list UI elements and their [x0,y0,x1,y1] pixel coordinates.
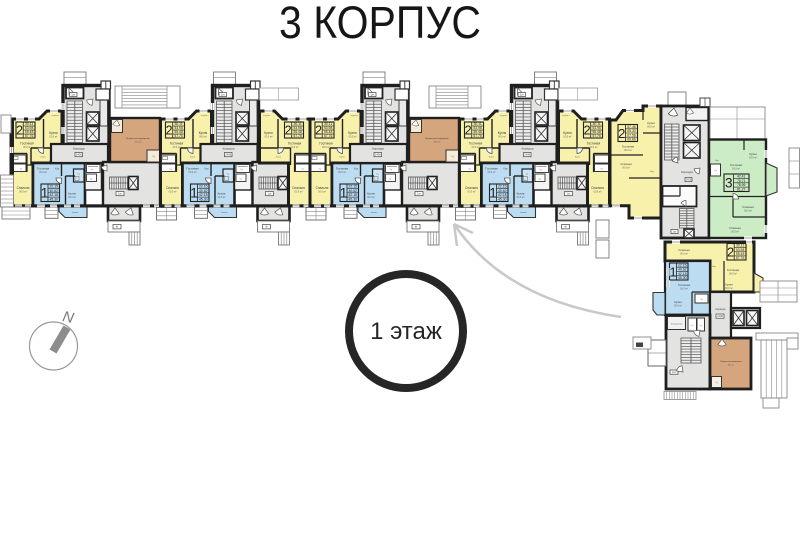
svg-text:Су: Су [77,174,79,176]
svg-text:2: 2 [16,124,23,138]
svg-text:40.62: 40.62 [199,189,208,193]
svg-text:00.0 м²: 00.0 м² [725,287,733,290]
svg-text:22.15: 22.15 [498,184,507,188]
svg-text:22.15: 22.15 [199,184,208,188]
svg-text:00.0 м²: 00.0 м² [50,135,58,138]
svg-text:Кухня: Кухня [68,192,76,196]
svg-text:00.0 м²: 00.0 м² [731,230,739,233]
svg-text:00.0 м²: 00.0 м² [468,190,476,193]
svg-text:57.76: 57.76 [25,134,34,138]
svg-text:Спальня: Спальня [316,186,329,190]
svg-text:Кор: Кор [354,168,359,171]
svg-text:00.0 м²: 00.0 м² [732,167,740,170]
svg-text:Су: Су [699,325,701,327]
svg-text:лоджия: лоджия [263,115,271,117]
svg-text:Холл: Холл [190,157,196,159]
svg-text:00.0 м²: 00.0 м² [680,287,688,290]
svg-text:Гостиная: Гостиная [288,142,302,146]
svg-text:Кухня: Кухня [367,192,375,196]
svg-text:00.0 м²: 00.0 м² [295,190,303,193]
svg-text:2: 2 [618,126,625,141]
svg-text:Су: Су [468,169,470,171]
svg-text:76.71: 76.71 [737,179,746,183]
svg-text:лоджия: лоджия [201,115,209,117]
svg-text:Кухня: Кухня [348,131,357,135]
svg-text:Су: Су [240,169,242,171]
svg-text:Коридор: Коридор [715,307,726,311]
svg-text:2: 2 [584,124,591,138]
svg-text:45.30: 45.30 [498,198,507,202]
svg-text:Спальня: Спальня [678,248,690,252]
svg-text:1: 1 [669,264,676,279]
svg-text:65.9 м²: 65.9 м² [135,140,142,143]
svg-text:45.30: 45.30 [678,276,687,280]
svg-text:00.0 м²: 00.0 м² [624,149,632,152]
svg-text:Кухня: Кухня [264,131,273,135]
svg-text:Гостиная: Гостиная [170,142,184,146]
svg-text:Гостиная: Гостиная [336,167,349,171]
svg-text:Кухня: Кухня [498,131,507,135]
svg-text:Су: Су [700,299,702,301]
svg-text:42.41: 42.41 [737,174,746,178]
svg-text:Холл: Холл [276,157,282,159]
svg-text:Кухня: Кухня [199,131,208,135]
svg-text:57.76: 57.76 [473,134,482,138]
svg-text:00.0 м²: 00.0 м² [674,304,682,307]
svg-text:00.0 м²: 00.0 м² [189,171,197,174]
svg-text:2408: 2408 [375,153,381,157]
svg-text:лоджия: лоджия [500,115,508,117]
svg-text:1: 1 [340,186,348,201]
svg-text:Кухня: Кухня [218,192,226,196]
svg-text:Коридор: Коридор [73,147,85,151]
svg-text:Су: Су [227,174,229,176]
svg-text:Спальня: Спальня [292,186,305,190]
svg-text:Су: Су [239,179,241,181]
svg-text:2408: 2408 [717,314,723,318]
svg-text:Су: Су [390,169,392,171]
svg-text:Су: Су [714,170,716,172]
svg-text:00.0 м²: 00.0 м² [749,156,757,159]
svg-text:1: 1 [489,186,497,201]
svg-text:Холл: Холл [40,157,46,159]
svg-text:Кухня: Кухня [749,152,757,156]
svg-text:45.30: 45.30 [50,198,59,202]
svg-text:С.у: С.у [691,325,694,327]
svg-text:57.76: 57.76 [324,134,333,138]
svg-text:Спальня: Спальня [17,186,30,190]
svg-text:45.30: 45.30 [349,198,358,202]
svg-text:Кор: Кор [503,168,508,171]
svg-text:2: 2 [315,124,322,138]
svg-text:22.15: 22.15 [50,184,59,188]
svg-text:Электрощитовая: Электрощитовая [671,324,683,326]
svg-text:Спальня: Спальня [465,186,478,190]
svg-text:Кор: Кор [55,168,60,171]
svg-text:Коридор: Коридор [372,147,384,151]
svg-text:Гостиная: Гостиная [485,167,498,171]
svg-text:Гостиная: Гостиная [587,142,601,146]
svg-text:00.0 м²: 00.0 м² [367,196,375,199]
svg-text:Гостиная: Гостиная [319,142,333,146]
svg-text:лоджия: лоджия [350,115,358,117]
svg-text:Су: Су [90,179,92,181]
svg-text:57.76: 57.76 [736,256,745,260]
svg-text:00.0 м²: 00.0 м² [318,190,326,193]
svg-text:00.0 м²: 00.0 м² [169,190,177,193]
svg-text:2: 2 [166,124,173,138]
svg-text:Су: Су [526,174,528,176]
svg-text:Су: Су [20,169,22,171]
svg-text:00.0 м²: 00.0 м² [517,196,525,199]
svg-text:Холл: Холл [575,157,581,159]
svg-text:Встроенное помещение: Встроенное помещение [126,138,150,140]
svg-text:Су: Су [376,174,378,176]
svg-text:Су: Су [451,156,453,158]
svg-text:Гостиная: Гостиная [20,142,34,146]
svg-text:балкон: балкон [520,212,527,214]
svg-text:лоджия: лоджия [51,115,59,117]
svg-text:Кухня: Кухня [517,192,525,196]
svg-text:Кор: Кор [204,168,209,171]
svg-text:Су: Су [91,169,93,171]
svg-text:Холл: Холл [339,157,345,159]
svg-text:Су: Су [301,169,303,171]
svg-text:Су: Су [389,179,391,181]
svg-text:1 этаж: 1 этаж [370,318,442,345]
svg-text:00.0 м²: 00.0 м² [594,190,602,193]
svg-text:2: 2 [727,244,734,259]
svg-text:Кухня: Кухня [49,131,58,135]
svg-text:Су: Су [715,382,717,384]
svg-text:00.0 м²: 00.0 м² [322,146,330,149]
svg-text:1: 1 [41,186,49,201]
svg-text:57.76: 57.76 [592,134,601,138]
svg-text:Су: Су [319,169,321,171]
svg-text:00.0 м²: 00.0 м² [488,171,496,174]
svg-text:Коридор: Коридор [681,170,693,174]
svg-text:00.0 м²: 00.0 м² [744,209,752,212]
svg-text:57.76: 57.76 [174,134,183,138]
svg-text:Су: Су [538,179,540,181]
svg-text:40.62: 40.62 [50,189,59,193]
svg-text:00.0 м²: 00.0 м² [218,196,226,199]
svg-text:22.15: 22.15 [349,184,358,188]
svg-text:2408: 2408 [225,153,231,157]
svg-text:Встроенное помещение: Встроенное помещение [720,361,741,363]
svg-text:Коридор: Коридор [522,147,534,151]
svg-text:Спальня: Спальня [166,186,179,190]
svg-text:Кухня: Кухня [725,283,733,287]
svg-text:00.0 м²: 00.0 м² [680,252,688,255]
svg-text:00.0 м²: 00.0 м² [647,125,655,128]
svg-text:Гостиная: Гостиная [622,145,635,149]
svg-text:Холл: Холл [489,157,495,159]
svg-text:00.0 м²: 00.0 м² [498,135,506,138]
svg-text:00.0 м²: 00.0 м² [39,171,47,174]
svg-text:00.0 м²: 00.0 м² [622,166,630,169]
svg-text:Гостиная: Гостиная [727,268,740,272]
svg-text:Спальня: Спальня [620,162,632,166]
svg-text:Кухня: Кухня [563,131,572,135]
svg-text:00.0 м²: 00.0 м² [729,272,737,275]
svg-text:Коридор: Коридор [223,147,235,151]
svg-text:00.0 м²: 00.0 м² [338,171,346,174]
svg-text:00.0 м²: 00.0 м² [173,146,181,149]
svg-text:45.30: 45.30 [199,198,208,202]
svg-text:57.76: 57.76 [293,134,302,138]
svg-text:лоджия: лоджия [562,115,570,117]
svg-text:Гостиная: Гостиная [186,167,199,171]
svg-text:1: 1 [190,186,198,201]
svg-text:40.62: 40.62 [498,189,507,193]
svg-text:Спальня: Спальня [591,186,604,190]
svg-text:балкон: балкон [221,212,228,214]
svg-text:Спальня: Спальня [729,226,741,230]
svg-text:2: 2 [285,124,292,138]
svg-text:00.0 м²: 00.0 м² [68,196,76,199]
svg-text:Су: Су [152,156,154,158]
svg-text:00.0 м²: 00.0 м² [23,146,31,149]
svg-text:Гостиная: Гостиная [37,167,50,171]
svg-text:Гостиная: Гостиная [469,142,483,146]
svg-text:2408: 2408 [76,153,82,157]
svg-text:3 КОРПУС: 3 КОРПУС [279,0,481,48]
svg-text:3: 3 [725,176,733,191]
svg-text:69.86: 69.86 [627,138,636,142]
svg-text:00.0 м²: 00.0 м² [19,190,27,193]
svg-text:81.27: 81.27 [737,188,746,192]
svg-text:2408: 2408 [686,177,692,181]
svg-text:2: 2 [465,124,472,138]
svg-text:Гостиная: Гостиная [730,163,743,167]
svg-text:Спальня: Спальня [742,205,754,209]
svg-text:00.0 м²: 00.0 м² [291,146,299,149]
svg-text:Су: Су [169,169,171,171]
svg-text:36.5 м²: 36.5 м² [728,363,735,366]
svg-text:Кухня: Кухня [674,300,682,304]
svg-text:балкон: балкон [371,212,378,214]
svg-text:Встроенное помещение: Встроенное помещение [425,138,449,140]
svg-text:Су: Су [539,169,541,171]
svg-text:40.62: 40.62 [349,189,358,193]
svg-text:00.0 м²: 00.0 м² [472,146,480,149]
svg-text:Кухня: Кухня [647,121,655,125]
svg-text:00.0 м²: 00.0 м² [349,135,357,138]
svg-text:65.9 м²: 65.9 м² [434,140,441,143]
svg-text:00.0 м²: 00.0 м² [590,146,598,149]
svg-text:балкон: балкон [72,212,79,214]
svg-text:00.0 м²: 00.0 м² [564,135,572,138]
svg-text:Гостиная: Гостиная [678,283,691,287]
svg-text:2408: 2408 [524,153,530,157]
svg-text:Су: Су [600,169,602,171]
svg-text:00.0 м²: 00.0 м² [265,135,273,138]
svg-text:00.0 м²: 00.0 м² [199,135,207,138]
